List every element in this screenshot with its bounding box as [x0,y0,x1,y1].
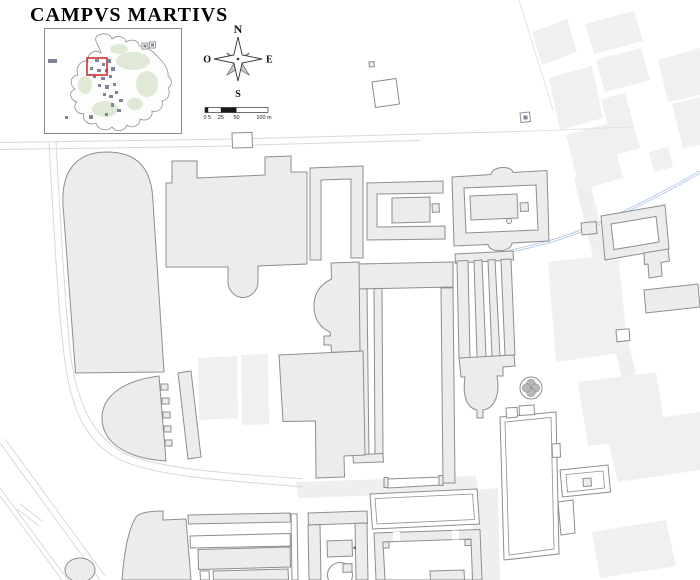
circular-monument [520,377,542,399]
theater-footprint [102,376,172,461]
tilted-square-monument [372,79,400,108]
campus-martius-map-screenshot: CAMPVS MARTIVS [0,0,700,580]
portico-footprint [310,166,363,260]
rotunda-complex-footprint [279,262,365,478]
scale-label-100m: 100 m [256,115,272,121]
compass-east-label: E [266,55,273,66]
map-title: CAMPVS MARTIVS [30,4,228,27]
slanted-hall-footprint [178,371,201,459]
temple-enclosure-west [367,181,445,240]
aqueduct-arch [581,222,597,236]
inset-canvas [45,29,181,133]
scale-label-5: 5 [208,115,211,121]
basilica-block-footprint [279,351,365,478]
temple-court-with-rotunda [291,511,368,580]
temple-enclosure-east [452,167,549,250]
walled-enclosure-south [374,530,482,580]
baths-footprint [166,156,307,298]
compass-north-label: N [234,22,243,36]
compass-south-label: S [235,89,241,100]
inset-overview-map [44,28,182,134]
temple-platform-outline [370,489,480,529]
scale-label-0: 0 [203,115,206,121]
compass-west-label: O [203,55,211,66]
scale-label-50: 50 [233,115,239,121]
stadium-footprint [63,152,164,373]
porticus-strips [188,513,291,580]
small-monuments-north [369,62,531,123]
scale-label-25: 25 [218,115,224,121]
curved-baths-footprint [65,511,191,580]
saepta-enclosure [353,262,455,483]
scale-bar: 0 5 25 50 100 m [203,108,272,122]
road-side-structure [232,132,253,148]
small-temple-outline [560,465,611,497]
colonnade-rows [455,251,515,418]
compass-rose: N S E O [203,22,273,100]
